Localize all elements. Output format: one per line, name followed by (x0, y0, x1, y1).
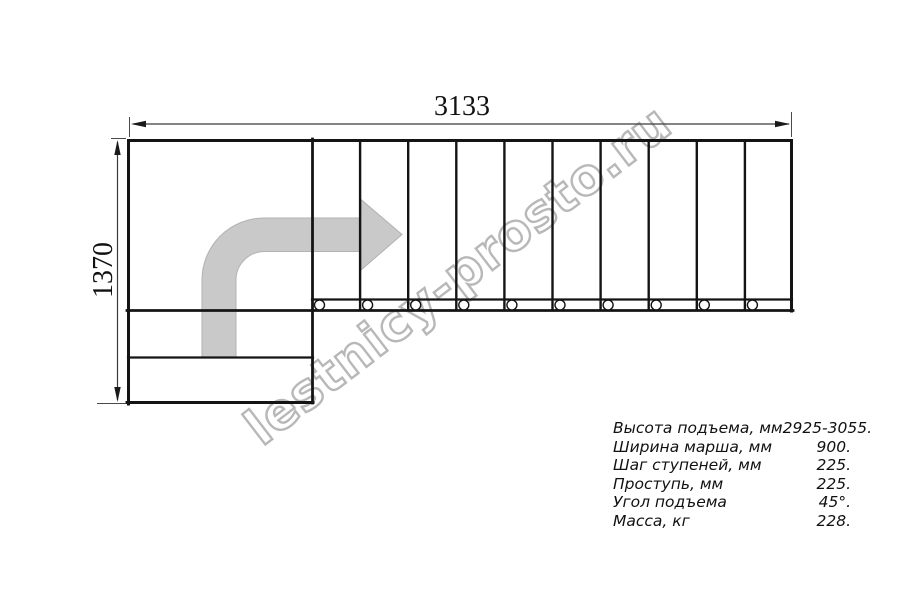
spec-label: Проступь, мм (613, 475, 723, 494)
baluster-circle (603, 300, 613, 310)
spec-label: Шаг ступеней, мм (613, 456, 762, 475)
dimension-width: 3133 (130, 91, 792, 137)
spec-row: Высота подъема, мм 2925-3055. (613, 419, 851, 438)
dim-height-value: 1370 (88, 242, 119, 298)
spec-value: 45°. (819, 493, 851, 512)
spec-row: Проступь, мм 225. (613, 475, 851, 494)
baluster-circle (747, 300, 757, 310)
dim-arrow-up-icon (114, 140, 120, 155)
spec-label: Высота подъема, мм (613, 419, 783, 438)
spec-row: Угол подъема 45°. (613, 493, 851, 512)
baluster-circle (555, 300, 565, 310)
baluster-circle (651, 300, 661, 310)
spec-table: Высота подъема, мм 2925-3055. Ширина мар… (613, 419, 851, 531)
spec-row: Масса, кг 228. (613, 512, 851, 531)
spec-value: 900. (816, 438, 851, 457)
baluster-circle (459, 300, 469, 310)
dim-arrow-right-icon (775, 121, 790, 127)
spec-value: 2925-3055. (783, 419, 872, 438)
spec-label: Ширина марша, мм (613, 438, 772, 457)
spec-value: 228. (816, 512, 851, 531)
dim-arrow-left-icon (131, 121, 146, 127)
spec-row: Шаг ступеней, мм 225. (613, 456, 851, 475)
spec-value: 225. (816, 475, 851, 494)
spec-value: 225. (816, 456, 851, 475)
baluster-circle (315, 300, 325, 310)
baluster-circle (363, 300, 373, 310)
spec-label: Масса, кг (613, 512, 690, 531)
dim-width-value: 3133 (434, 91, 490, 122)
dim-arrow-down-icon (114, 387, 120, 402)
dimension-height: 1370 (88, 139, 126, 404)
staircase-drawing-page: lestnicy-prosto.ru 3133 (0, 0, 900, 600)
baluster-circle (507, 300, 517, 310)
baluster-circle (411, 300, 421, 310)
spec-label: Угол подъема (613, 493, 727, 512)
spec-row: Ширина марша, мм 900. (613, 438, 851, 457)
baluster-circle (699, 300, 709, 310)
